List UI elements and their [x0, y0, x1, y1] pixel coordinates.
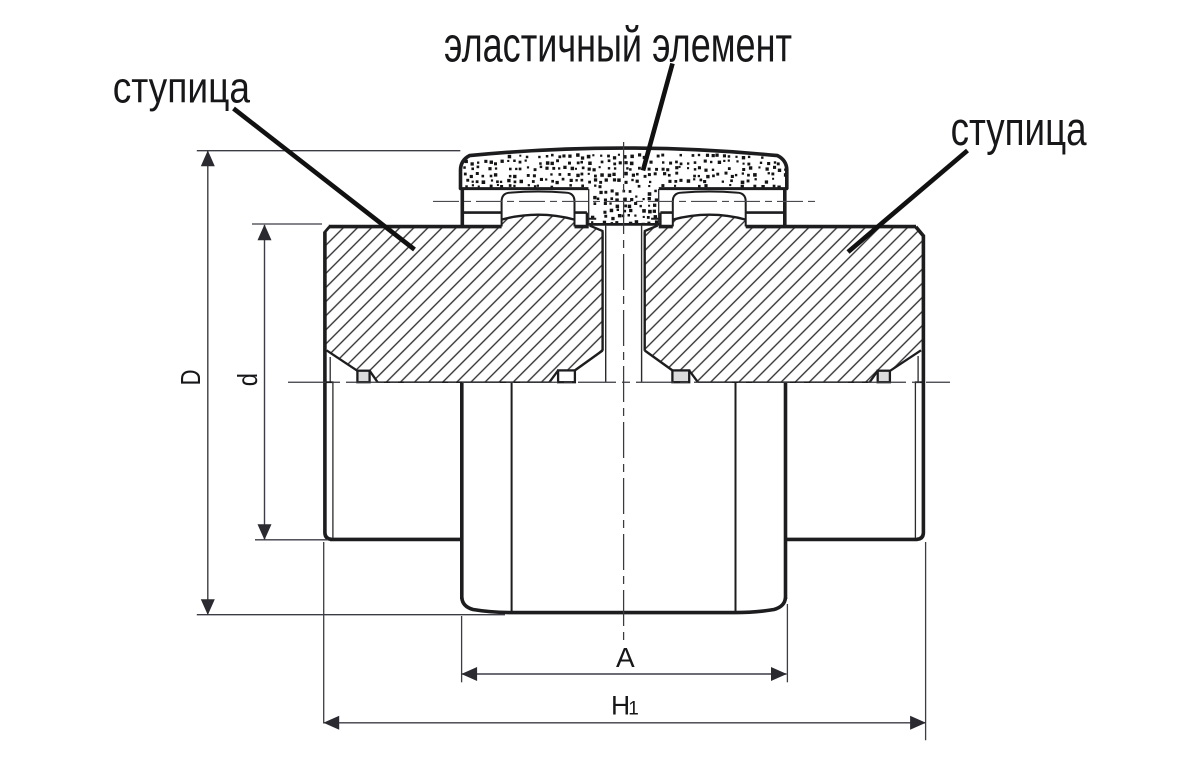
svg-text:ступица: ступица — [951, 102, 1088, 155]
svg-text:1: 1 — [628, 699, 639, 720]
svg-text:d: d — [231, 373, 263, 386]
svg-text:эластичный элемент: эластичный элемент — [444, 19, 792, 73]
svg-text:A: A — [616, 642, 635, 673]
svg-text:H: H — [611, 691, 630, 721]
svg-text:ступица: ступица — [113, 65, 251, 113]
svg-text:D: D — [176, 370, 207, 386]
